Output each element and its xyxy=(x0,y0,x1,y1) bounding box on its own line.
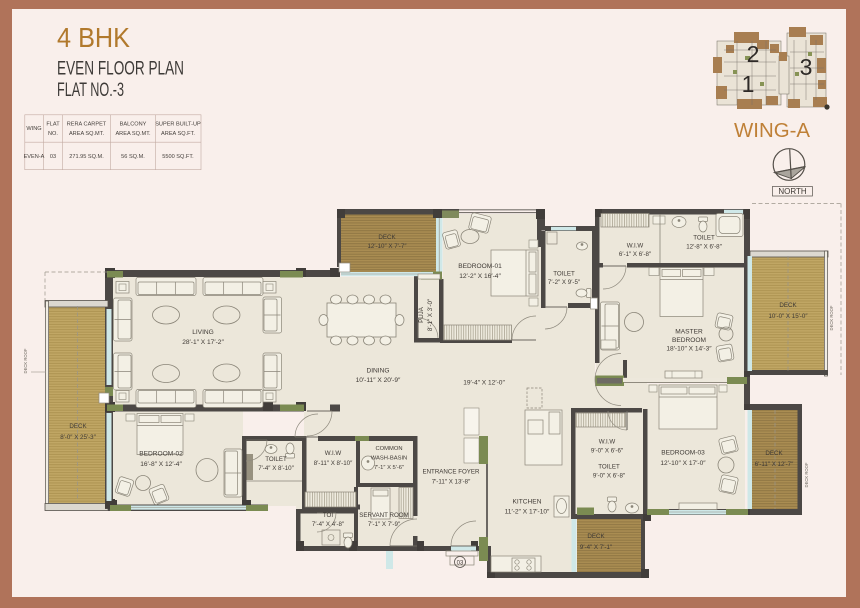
svg-text:DECK ROOF: DECK ROOF xyxy=(829,305,834,330)
svg-text:12′-10″ X 17′-0″: 12′-10″ X 17′-0″ xyxy=(660,460,706,467)
svg-text:TOILET: TOILET xyxy=(598,464,620,471)
svg-text:8′-11″ X 8′-10″: 8′-11″ X 8′-10″ xyxy=(314,460,353,467)
svg-text:W.I.W: W.I.W xyxy=(599,439,616,446)
svg-text:6′-11″ X 12′-7″: 6′-11″ X 12′-7″ xyxy=(755,461,794,468)
svg-text:03: 03 xyxy=(457,561,464,567)
svg-text:RERA CARPET: RERA CARPET xyxy=(67,122,107,128)
svg-text:ENTRANCE FOYER: ENTRANCE FOYER xyxy=(422,469,480,476)
svg-text:TOI: TOI xyxy=(323,512,333,519)
svg-text:19′-4″ X 12′-0″: 19′-4″ X 12′-0″ xyxy=(463,380,505,387)
svg-text:8′-0″ X 25′-3″: 8′-0″ X 25′-3″ xyxy=(60,434,96,441)
svg-text:2: 2 xyxy=(747,41,760,67)
svg-text:12′-8″ X 6′-8″: 12′-8″ X 6′-8″ xyxy=(686,243,722,250)
svg-text:12′-10″ X 7′-7″: 12′-10″ X 7′-7″ xyxy=(367,243,407,250)
svg-text:8′-1″ X 3′-0″: 8′-1″ X 3′-0″ xyxy=(427,298,434,331)
svg-text:12′-2″ X 16′-4″: 12′-2″ X 16′-4″ xyxy=(459,273,501,280)
svg-text:7′-4″ X 4′-8″: 7′-4″ X 4′-8″ xyxy=(312,521,345,528)
svg-text:9′-0″ X 6′-6″: 9′-0″ X 6′-6″ xyxy=(591,447,624,454)
svg-text:AREA SQ.FT.: AREA SQ.FT. xyxy=(161,131,195,137)
svg-text:28′-1″ X 17′-2″: 28′-1″ X 17′-2″ xyxy=(182,339,224,346)
svg-text:03: 03 xyxy=(50,154,56,160)
svg-text:18′-10″ X 14′-3″: 18′-10″ X 14′-3″ xyxy=(666,346,712,353)
svg-text:11′-2″ X 17′-10″: 11′-2″ X 17′-10″ xyxy=(505,509,550,516)
svg-text:EVEN-A: EVEN-A xyxy=(24,154,45,160)
svg-text:5500 SQ.FT.: 5500 SQ.FT. xyxy=(162,154,194,160)
svg-text:FLAT NO.-3: FLAT NO.-3 xyxy=(57,80,124,101)
svg-text:FLAT: FLAT xyxy=(46,122,60,128)
svg-text:7′-1″ X 5′-6″: 7′-1″ X 5′-6″ xyxy=(374,465,404,471)
svg-text:10′-0″ X 15′-0″: 10′-0″ X 15′-0″ xyxy=(768,313,808,320)
svg-text:SERVANT ROOM: SERVANT ROOM xyxy=(359,512,409,519)
svg-text:W.I.W: W.I.W xyxy=(325,450,342,457)
svg-text:16′-8″ X 12′-4″: 16′-8″ X 12′-4″ xyxy=(140,461,182,468)
svg-text:SUPER BUILT-UP: SUPER BUILT-UP xyxy=(155,122,201,128)
svg-text:DINING: DINING xyxy=(366,368,389,375)
svg-text:10′-11″ X 20′-9″: 10′-11″ X 20′-9″ xyxy=(356,377,401,384)
svg-text:PUJA: PUJA xyxy=(418,306,425,323)
svg-text:KITCHEN: KITCHEN xyxy=(513,499,542,506)
svg-text:WASH-BASIN: WASH-BASIN xyxy=(371,456,408,462)
svg-text:BEDROOM-02: BEDROOM-02 xyxy=(139,451,183,458)
svg-text:1: 1 xyxy=(742,71,755,97)
svg-text:NORTH: NORTH xyxy=(778,187,807,196)
svg-text:4 BHK: 4 BHK xyxy=(57,22,131,53)
svg-text:7′-2″ X 9′-5″: 7′-2″ X 9′-5″ xyxy=(548,279,581,286)
svg-text:56 SQ.M.: 56 SQ.M. xyxy=(121,154,145,160)
svg-text:BALCONY: BALCONY xyxy=(120,122,147,128)
svg-text:TOILET: TOILET xyxy=(265,456,287,463)
svg-text:TOILET: TOILET xyxy=(553,271,575,278)
svg-text:NO.: NO. xyxy=(48,131,58,137)
svg-text:AREA SQ.MT.: AREA SQ.MT. xyxy=(69,131,105,137)
svg-text:271.95 SQ.M.: 271.95 SQ.M. xyxy=(69,154,104,160)
svg-text:7′-1″ X 7′-9″: 7′-1″ X 7′-9″ xyxy=(368,521,401,528)
svg-text:6′-1″ X 6′-8″: 6′-1″ X 6′-8″ xyxy=(619,251,652,258)
svg-text:3: 3 xyxy=(800,54,813,80)
svg-text:9′-0″ X 6′-8″: 9′-0″ X 6′-8″ xyxy=(593,472,626,479)
svg-text:W.I.W: W.I.W xyxy=(627,243,644,250)
svg-text:DECK: DECK xyxy=(587,533,605,540)
svg-text:DECK ROOF: DECK ROOF xyxy=(23,348,28,373)
svg-text:MASTER: MASTER xyxy=(675,329,703,336)
svg-text:7′-4″ X 8′-10″: 7′-4″ X 8′-10″ xyxy=(258,465,294,472)
svg-text:BEDROOM-03: BEDROOM-03 xyxy=(661,450,705,457)
svg-text:DECK: DECK xyxy=(378,234,396,241)
svg-text:DECK ROOF: DECK ROOF xyxy=(804,462,809,487)
svg-text:WING-A: WING-A xyxy=(734,119,810,142)
svg-text:COMMON: COMMON xyxy=(375,446,402,452)
svg-text:BEDROOM-01: BEDROOM-01 xyxy=(458,263,502,270)
svg-text:DECK: DECK xyxy=(69,423,87,430)
svg-text:9′-4″ X 7′-1″: 9′-4″ X 7′-1″ xyxy=(580,544,613,551)
svg-text:7′-11″ X 13′-8″: 7′-11″ X 13′-8″ xyxy=(432,479,471,486)
svg-text:DECK: DECK xyxy=(765,450,783,457)
svg-text:LIVING: LIVING xyxy=(192,329,214,336)
svg-text:EVEN FLOOR PLAN: EVEN FLOOR PLAN xyxy=(57,59,184,80)
svg-text:AREA SQ.MT.: AREA SQ.MT. xyxy=(115,131,151,137)
svg-text:WING: WING xyxy=(26,126,41,132)
svg-text:TOILET: TOILET xyxy=(693,235,715,242)
svg-text:DECK: DECK xyxy=(779,302,797,309)
svg-text:BEDROOM: BEDROOM xyxy=(672,337,706,344)
